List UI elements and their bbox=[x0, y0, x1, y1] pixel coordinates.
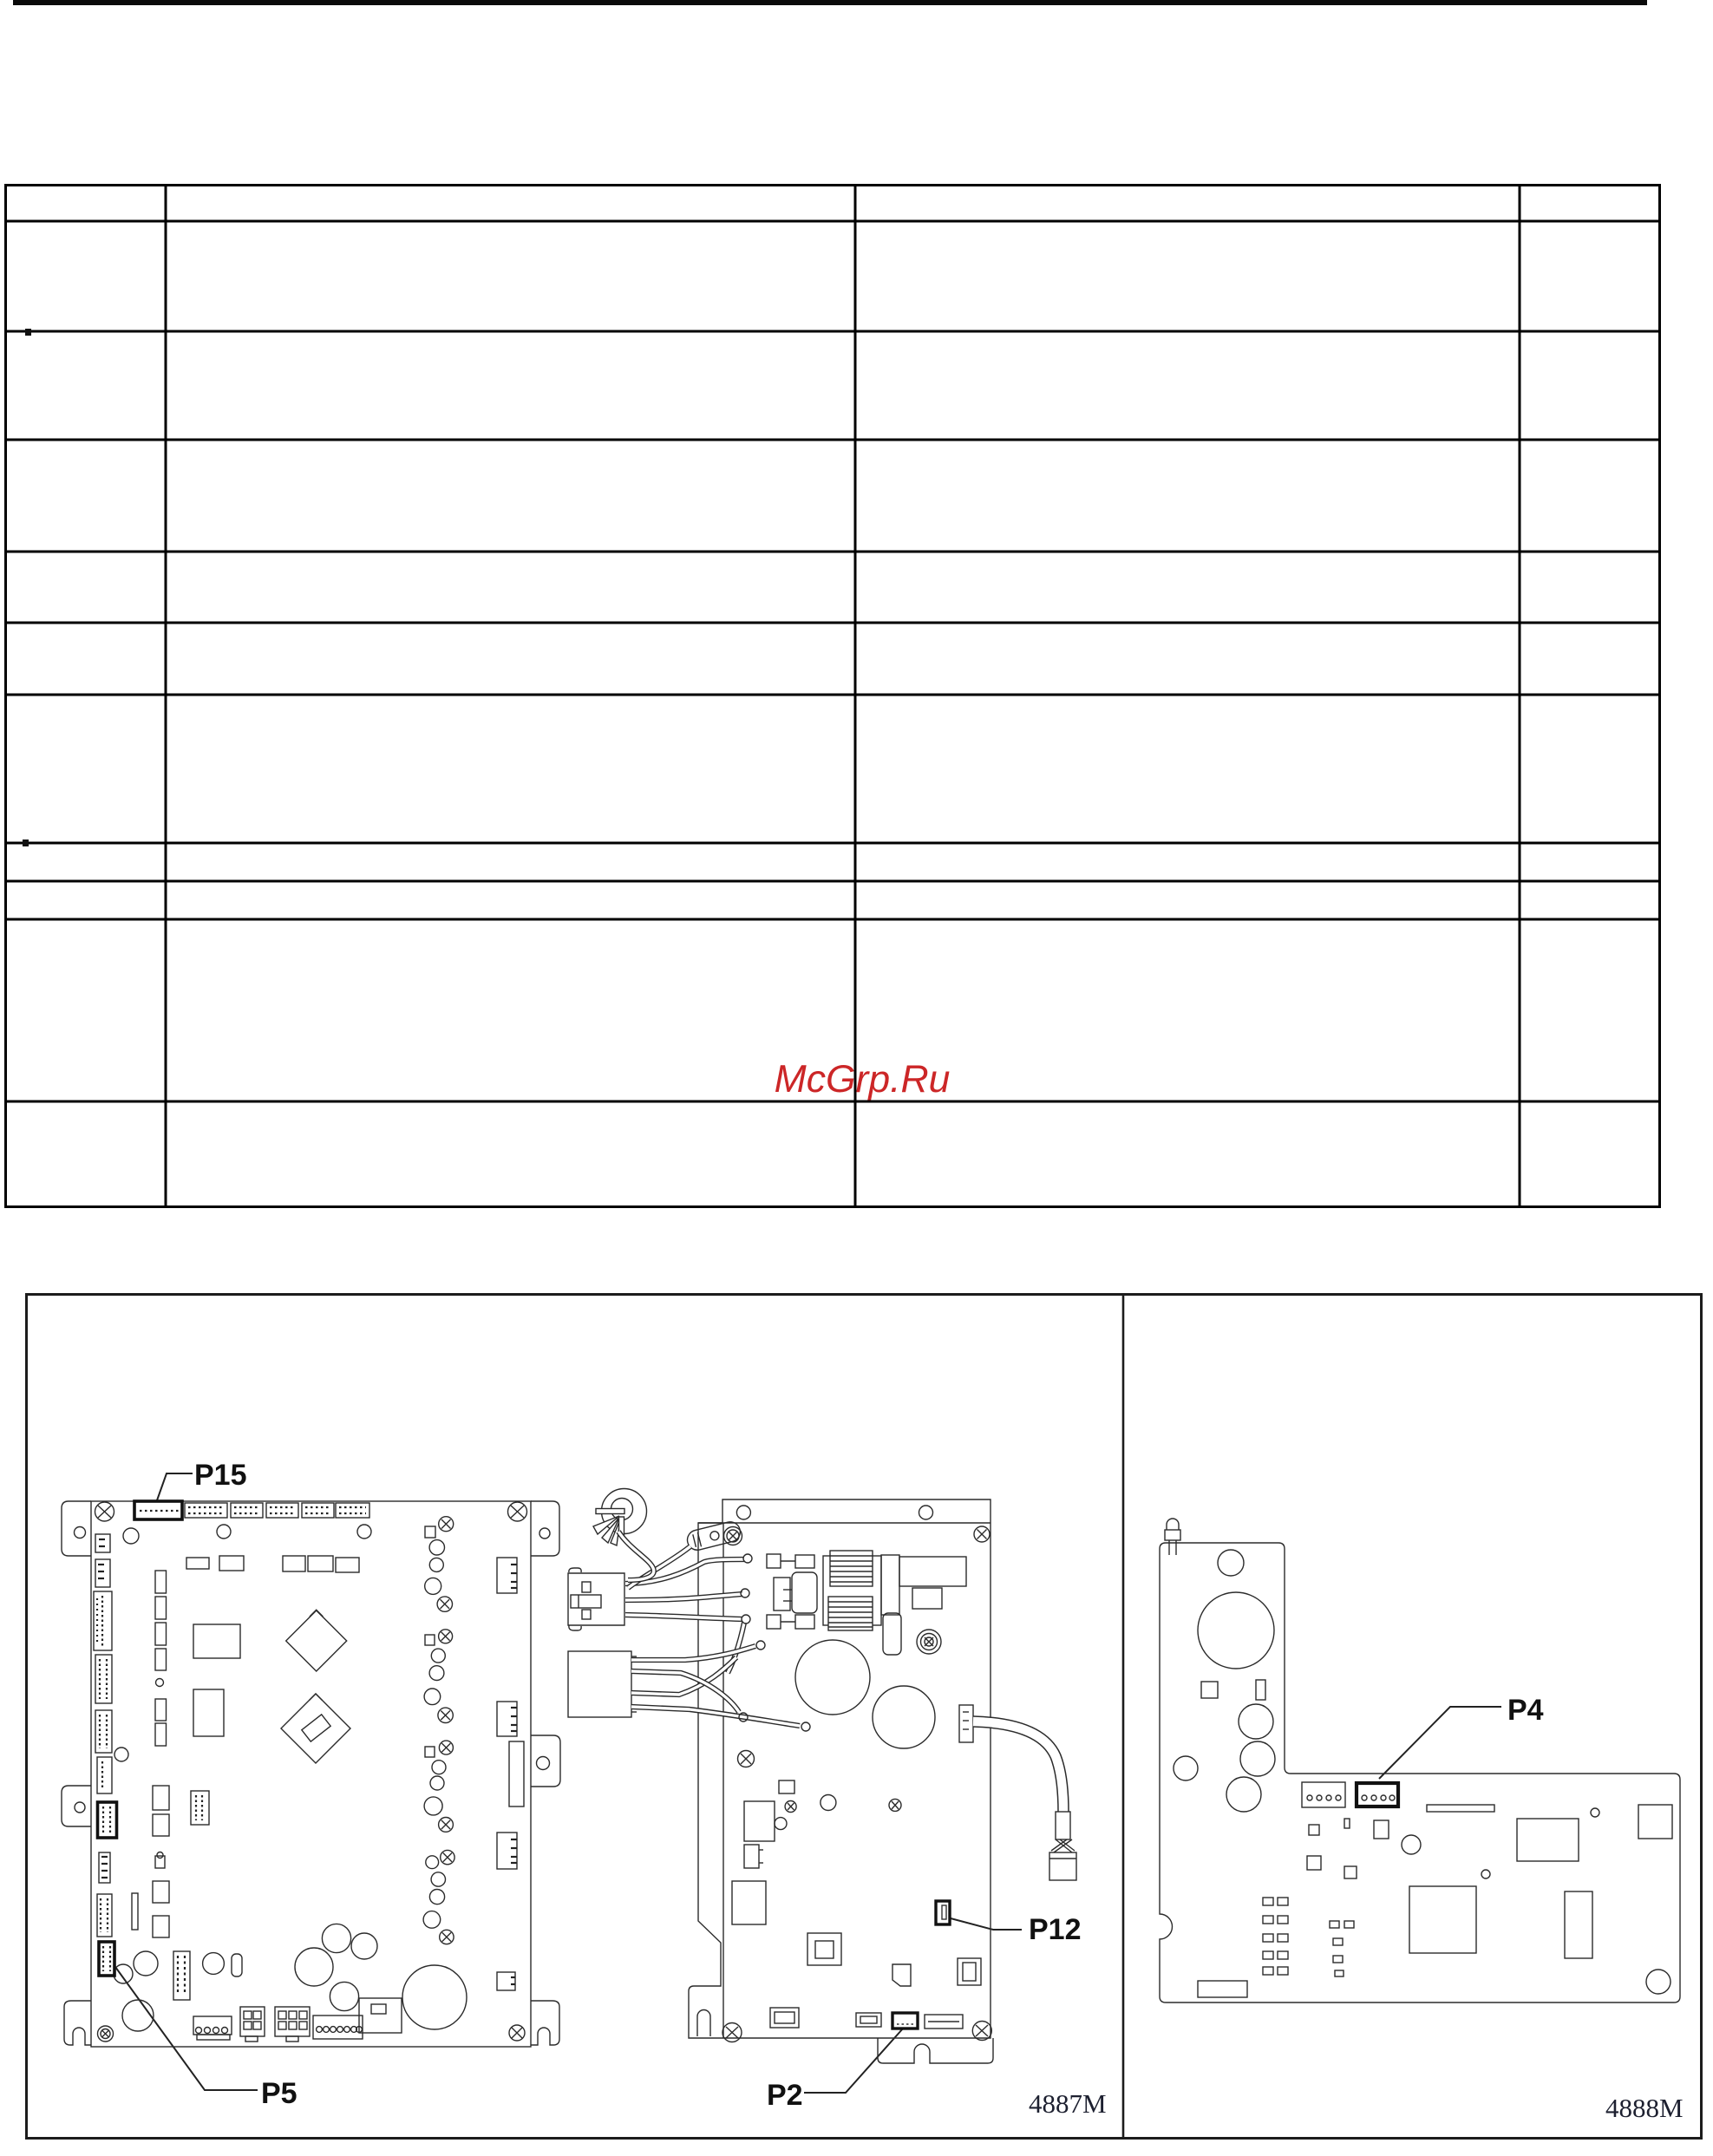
svg-text:P12: P12 bbox=[1029, 1913, 1082, 1946]
svg-text:4888M: 4888M bbox=[1605, 2093, 1684, 2123]
svg-text:P4: P4 bbox=[1507, 1694, 1544, 1727]
svg-text:P15: P15 bbox=[194, 1459, 247, 1492]
svg-text:P5: P5 bbox=[261, 2077, 297, 2110]
svg-text:P2: P2 bbox=[767, 2079, 803, 2112]
svg-text:McGrp.Ru: McGrp.Ru bbox=[775, 1058, 951, 1101]
svg-text:4887M: 4887M bbox=[1029, 2088, 1107, 2119]
